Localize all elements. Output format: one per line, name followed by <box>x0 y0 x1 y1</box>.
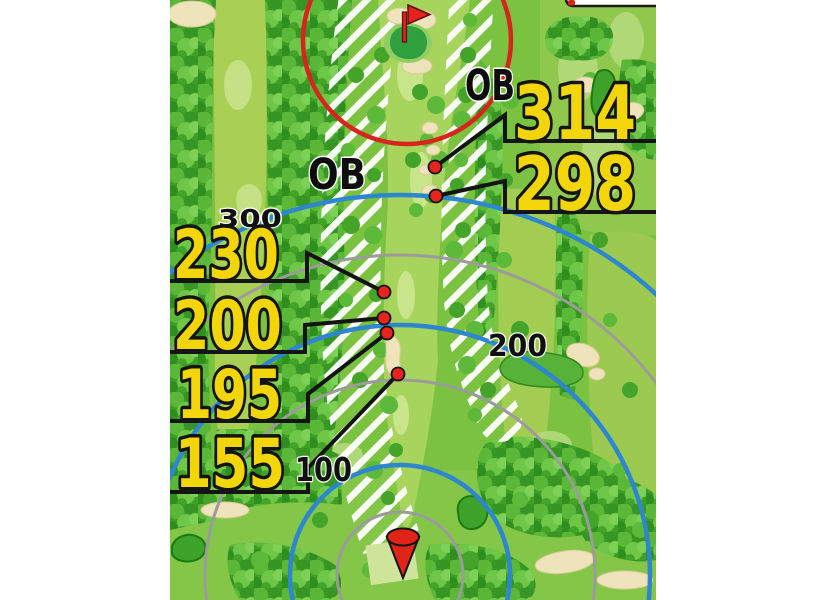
callout-195-value: 195 <box>177 356 282 435</box>
target-dot-195[interactable] <box>381 327 394 340</box>
callout-155-value: 155 <box>175 425 285 504</box>
course-map[interactable]: 300 200 100 OB OB 314 298 230 200 195 15… <box>170 0 656 600</box>
golf-app-screen: 300 200 100 OB OB 314 298 230 200 195 15… <box>0 0 820 600</box>
panel-red-mark <box>568 0 575 6</box>
callout-230-value: 230 <box>173 216 279 295</box>
target-dot-314[interactable] <box>429 161 442 174</box>
ob-label-right: OB <box>465 61 515 111</box>
ob-label-left: OB <box>308 150 366 200</box>
target-dot-200[interactable] <box>378 312 391 325</box>
callout-298-value: 298 <box>514 140 636 228</box>
putting-green <box>384 23 432 63</box>
overlay-panel-cutoff[interactable] <box>566 0 656 6</box>
ring-label-100: 100 <box>295 450 352 489</box>
callout-200-value: 200 <box>173 287 282 366</box>
target-dot-155[interactable] <box>392 368 405 381</box>
target-dot-298[interactable] <box>430 190 443 203</box>
target-dot-230[interactable] <box>378 286 391 299</box>
ring-label-200: 200 <box>488 329 547 364</box>
